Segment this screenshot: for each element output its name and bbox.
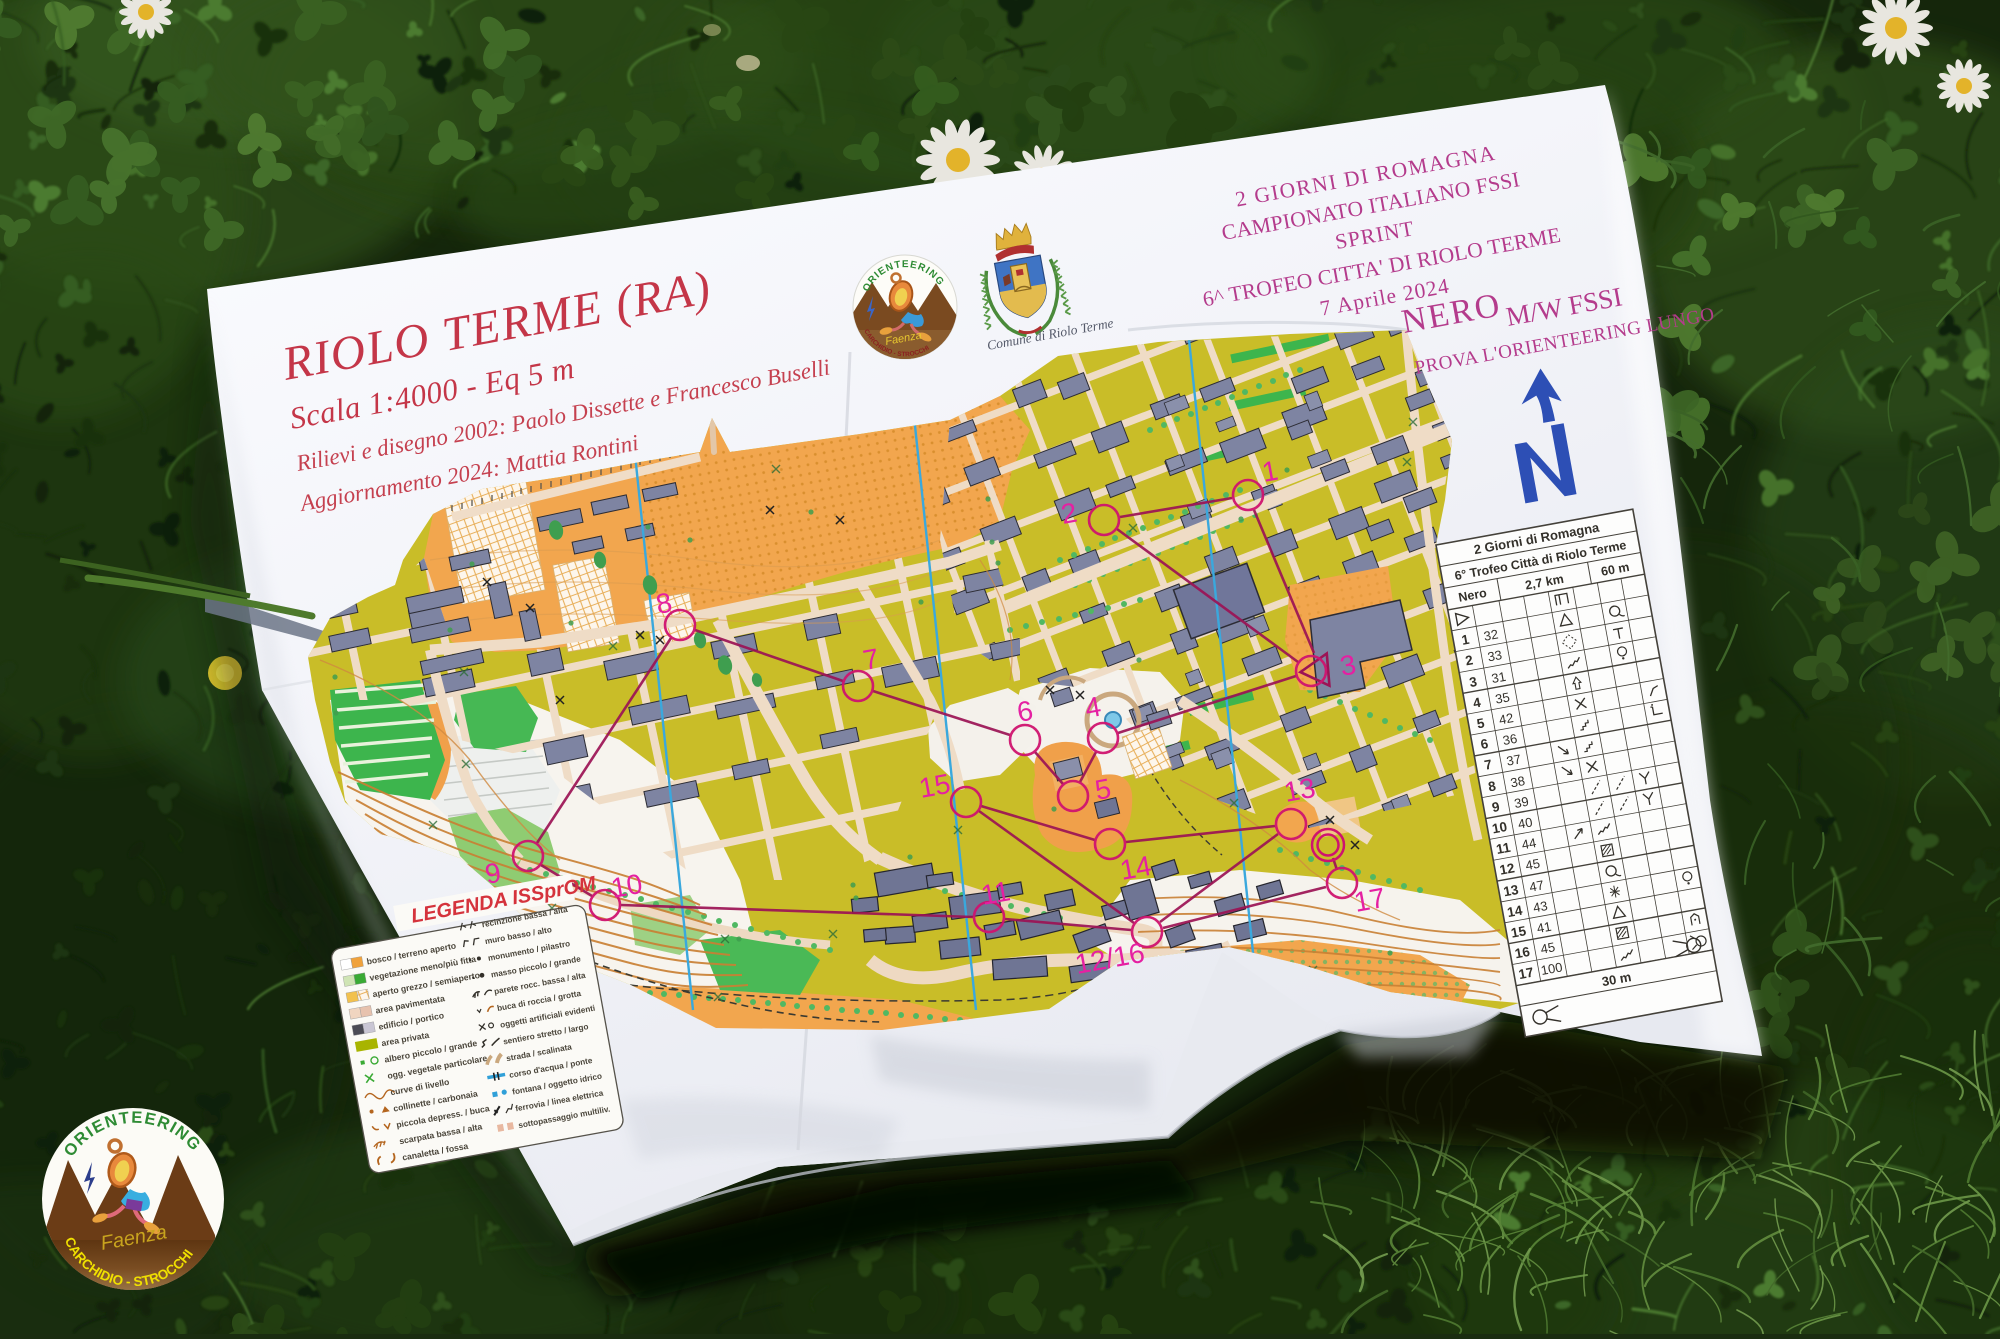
svg-text:10: 10 bbox=[1491, 819, 1508, 836]
svg-text:15: 15 bbox=[917, 768, 953, 804]
svg-text:31: 31 bbox=[1490, 669, 1507, 686]
svg-text:12: 12 bbox=[1498, 860, 1515, 877]
svg-text:14: 14 bbox=[1506, 903, 1524, 921]
svg-text:11: 11 bbox=[979, 875, 1013, 911]
svg-text:45: 45 bbox=[1539, 939, 1556, 956]
svg-text:38: 38 bbox=[1509, 773, 1526, 790]
svg-text:14: 14 bbox=[1118, 850, 1154, 886]
svg-text:40: 40 bbox=[1517, 814, 1534, 831]
svg-text:44: 44 bbox=[1520, 835, 1537, 852]
svg-text:45: 45 bbox=[1524, 856, 1541, 873]
svg-text:42: 42 bbox=[1498, 710, 1515, 727]
svg-text:10: 10 bbox=[609, 868, 645, 904]
svg-text:32: 32 bbox=[1483, 626, 1500, 643]
svg-text:35: 35 bbox=[1494, 689, 1511, 706]
svg-text:13: 13 bbox=[1282, 772, 1318, 808]
svg-text:47: 47 bbox=[1528, 877, 1545, 894]
svg-text:36: 36 bbox=[1501, 731, 1518, 748]
svg-text:15: 15 bbox=[1510, 923, 1528, 941]
svg-text:37: 37 bbox=[1505, 751, 1522, 768]
svg-text:17: 17 bbox=[1517, 965, 1534, 982]
svg-text:39: 39 bbox=[1513, 794, 1530, 811]
svg-text:33: 33 bbox=[1486, 647, 1503, 664]
svg-text:16: 16 bbox=[1514, 944, 1532, 962]
svg-text:41: 41 bbox=[1536, 919, 1553, 936]
svg-text:43: 43 bbox=[1532, 898, 1549, 915]
svg-text:17: 17 bbox=[1352, 882, 1388, 918]
svg-text:13: 13 bbox=[1502, 882, 1520, 900]
